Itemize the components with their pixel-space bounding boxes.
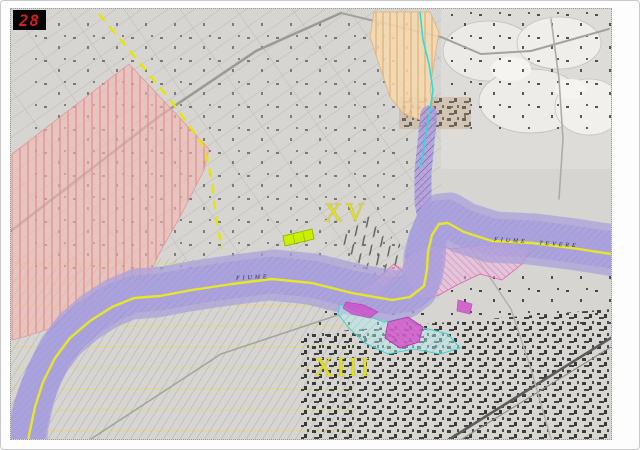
map-viewer-frame: 28 XV XIII FIUME FIUME TEVERE xyxy=(0,0,640,450)
sheet-number: 28 xyxy=(19,11,40,30)
district-label-xiii: XIII xyxy=(314,354,372,381)
district-label-xv: XV xyxy=(324,200,368,226)
urban-fringe-e xyxy=(451,269,611,324)
scattered-buildings-ne xyxy=(451,9,611,129)
map-drawing xyxy=(11,9,611,439)
sheet-number-badge: 28 xyxy=(13,10,46,30)
map-canvas[interactable]: 28 XV XIII FIUME FIUME TEVERE xyxy=(10,8,612,440)
